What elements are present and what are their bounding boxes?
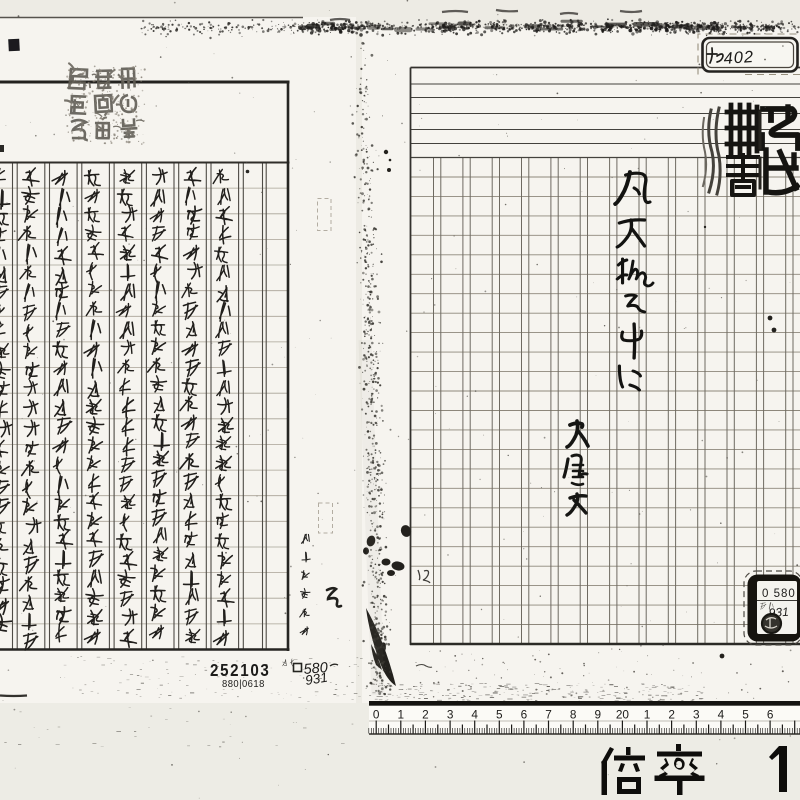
svg-text:5: 5 bbox=[742, 708, 749, 722]
svg-text:1: 1 bbox=[644, 708, 651, 722]
svg-text:402: 402 bbox=[723, 48, 755, 68]
svg-text:2: 2 bbox=[668, 708, 675, 722]
svg-text:5: 5 bbox=[496, 708, 503, 722]
svg-text:1: 1 bbox=[398, 708, 405, 722]
svg-text:6: 6 bbox=[767, 708, 774, 722]
svg-text:0: 0 bbox=[373, 708, 380, 722]
svg-text:7: 7 bbox=[545, 708, 552, 722]
svg-text:6: 6 bbox=[521, 708, 528, 722]
svg-text:3: 3 bbox=[693, 708, 700, 722]
svg-text:8: 8 bbox=[570, 708, 577, 722]
svg-text:4: 4 bbox=[718, 708, 725, 722]
svg-text:2: 2 bbox=[422, 708, 429, 722]
svg-text:252103: 252103 bbox=[210, 660, 271, 681]
svg-text:9: 9 bbox=[595, 708, 602, 722]
svg-text:0 580: 0 580 bbox=[762, 588, 796, 600]
svg-text:4: 4 bbox=[471, 708, 478, 722]
svg-text:20: 20 bbox=[616, 708, 630, 722]
svg-text:3: 3 bbox=[447, 708, 454, 722]
svg-text:880|0618: 880|0618 bbox=[222, 679, 265, 691]
